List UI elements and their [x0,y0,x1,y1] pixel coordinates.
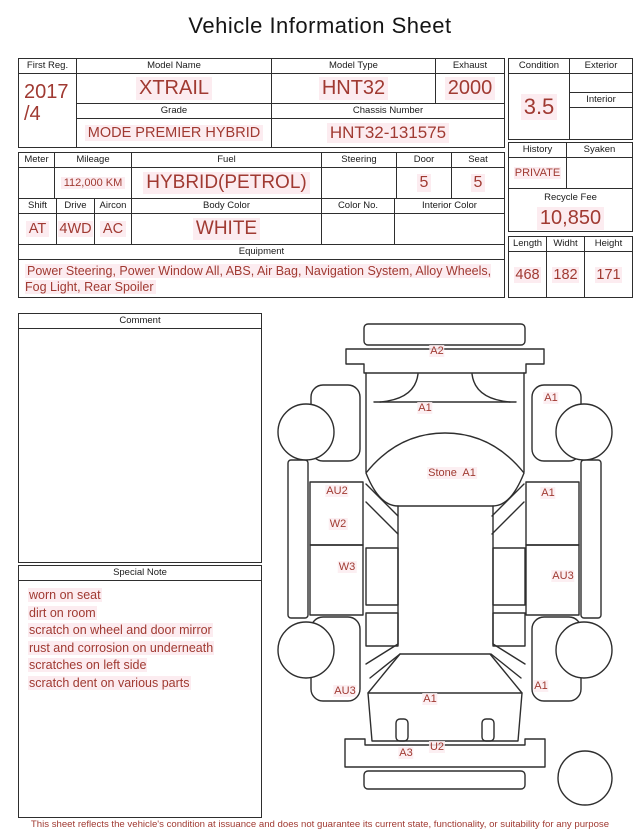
meter-value [19,168,54,198]
height-label: Height [585,237,632,252]
seat-label: Seat [451,153,504,168]
spare-tire [558,751,612,805]
damage-label-front-left-door-lower: W2 [329,518,348,530]
rear-left-wheel [278,622,334,678]
wiper-arcs [380,374,510,402]
roof-lines [398,506,493,644]
model-name-label: Model Name [77,59,271,74]
model-type-label: Model Type [272,59,435,74]
damage-label-rear-right-fender: A1 [533,680,548,692]
car-damage-diagram: A2 A1 A1 Stone A1 AU2 A1 W2 W3 AU3 AU3 A… [268,312,640,820]
left-rear-window [366,613,398,646]
first-reg-value: 2017 /4 [19,74,76,147]
front-right-wheel [556,404,612,460]
details-table: Meter Mileage Fuel Steering Door Seat 11… [18,152,505,298]
damage-label-front-bumper: A2 [429,345,444,357]
rear-left-door [310,545,363,615]
comment-box: Comment [18,313,262,563]
shift-label: Shift [19,199,56,214]
dimensions-table: Length 468 Widht 182 Height 171 [508,236,633,298]
color-no-value [321,214,394,244]
model-name-value: XTRAIL [136,77,212,100]
exterior-value [570,74,632,93]
history-value: PRIVATE [514,167,561,179]
mileage-label: Mileage [54,153,131,168]
interior-color-label: Interior Color [394,199,504,214]
color-no-label: Color No. [321,199,394,214]
rear-right-wheel [556,622,612,678]
door-value: 5 [417,174,432,192]
a-pillars [366,484,524,534]
body-color-value: WHITE [193,218,260,240]
front-bumper [346,349,544,373]
damage-label-tailgate: A1 [422,693,437,705]
fuel-label: Fuel [131,153,321,168]
special-note-list: worn on seat dirt on room scratch on whe… [19,581,261,698]
right-rear-window [493,613,525,646]
width-value: 182 [552,267,578,283]
condition-score: 3.5 [521,94,558,120]
chassis-number-label: Chassis Number [272,104,504,119]
history-label: History [509,143,566,158]
length-value: 468 [514,267,540,283]
rear-bumper-lower [364,771,525,789]
damage-label-rear-bumper-left: A3 [398,747,413,759]
left-tail-light [396,719,408,741]
left-rocker-panel [288,460,308,618]
first-reg-year: 2017 [24,81,69,103]
damage-label-front-right-door: A1 [540,487,555,499]
syaken-value [567,158,632,188]
damage-label-front-left-door-upper: AU2 [325,485,348,497]
mileage-value: 112,000 KM [61,177,126,189]
body-color-label: Body Color [131,199,321,214]
special-note-line: dirt on room [28,605,252,623]
meter-label: Meter [19,153,54,168]
equipment-text: Power Steering, Power Window All, ABS, A… [19,260,504,298]
drive-label: Drive [56,199,94,214]
damage-label-windshield: Stone A1 [427,467,477,479]
c-pillars [366,644,525,678]
tailgate [368,693,522,741]
damage-label-hood: A1 [417,402,432,414]
comment-text [19,329,261,559]
special-note-line: scratch on wheel and door mirror [28,622,252,640]
interior-label: Interior [570,93,632,108]
right-tail-light [482,719,494,741]
front-bumper-upper [364,324,525,345]
special-note-line: scratches on left side [28,657,252,675]
shift-value: AT [26,221,49,237]
page-title: Vehicle Information Sheet [0,13,640,39]
grade-value: MODE PREMIER HYBRID [85,125,263,141]
damage-label-rear-left-fender: AU3 [333,685,356,697]
condition-table: Condition 3.5 Exterior Interior [508,58,633,140]
interior-value [570,108,632,139]
steering-value [321,168,396,198]
damage-label-front-right-fender: A1 [543,392,558,404]
length-label: Length [509,237,546,252]
hood [366,373,524,472]
chassis-number-value: HNT32-131575 [327,123,449,143]
exterior-label: Exterior [570,59,632,74]
interior-color-value [394,214,504,244]
special-note-line: worn on seat [28,587,252,605]
equipment-label: Equipment [19,245,504,260]
aircon-value: AC [100,221,126,237]
damage-label-rear-bumper-center: U2 [429,741,445,753]
special-note-line: scratch dent on various parts [28,675,252,693]
damage-label-rear-left-door: W3 [338,561,357,573]
width-label: Widht [547,237,584,252]
steering-label: Steering [321,153,396,168]
vehicle-information-sheet: Vehicle Information Sheet First Reg. 201… [0,0,640,835]
height-value: 171 [595,267,621,283]
history-table: History PRIVATE Syaken Recycle Fee 10,85… [508,142,633,232]
drive-value: 4WD [58,221,92,237]
special-note-box: Special Note worn on seat dirt on room s… [18,565,262,818]
special-note-label: Special Note [19,566,261,581]
recycle-fee-label: Recycle Fee [509,191,632,206]
car-outline [268,312,640,820]
right-rocker-panel [581,460,601,618]
right-front-window [493,548,525,605]
front-left-wheel [278,404,334,460]
left-front-window [366,548,398,605]
condition-label: Condition [509,59,569,74]
recycle-fee-value: 10,850 [537,207,604,230]
aircon-label: Aircon [94,199,131,214]
comment-label: Comment [19,314,261,329]
model-info-table: First Reg. 2017 /4 Model Name XTRAIL Gra… [18,58,505,148]
door-label: Door [396,153,451,168]
syaken-label: Syaken [567,143,632,158]
first-reg-month: /4 [24,103,41,125]
first-reg-label: First Reg. [19,59,76,74]
special-note-line: rust and corrosion on underneath [28,640,252,658]
grade-label: Grade [77,104,271,119]
exhaust-label: Exhaust [436,59,504,74]
damage-label-rear-right-door: AU3 [551,570,574,582]
model-type-value: HNT32 [319,77,388,100]
disclaimer-text: This sheet reflects the vehicle's condit… [0,819,640,830]
seat-value: 5 [471,174,486,192]
exhaust-value: 2000 [445,77,496,100]
fuel-value: HYBRID(PETROL) [143,172,309,194]
